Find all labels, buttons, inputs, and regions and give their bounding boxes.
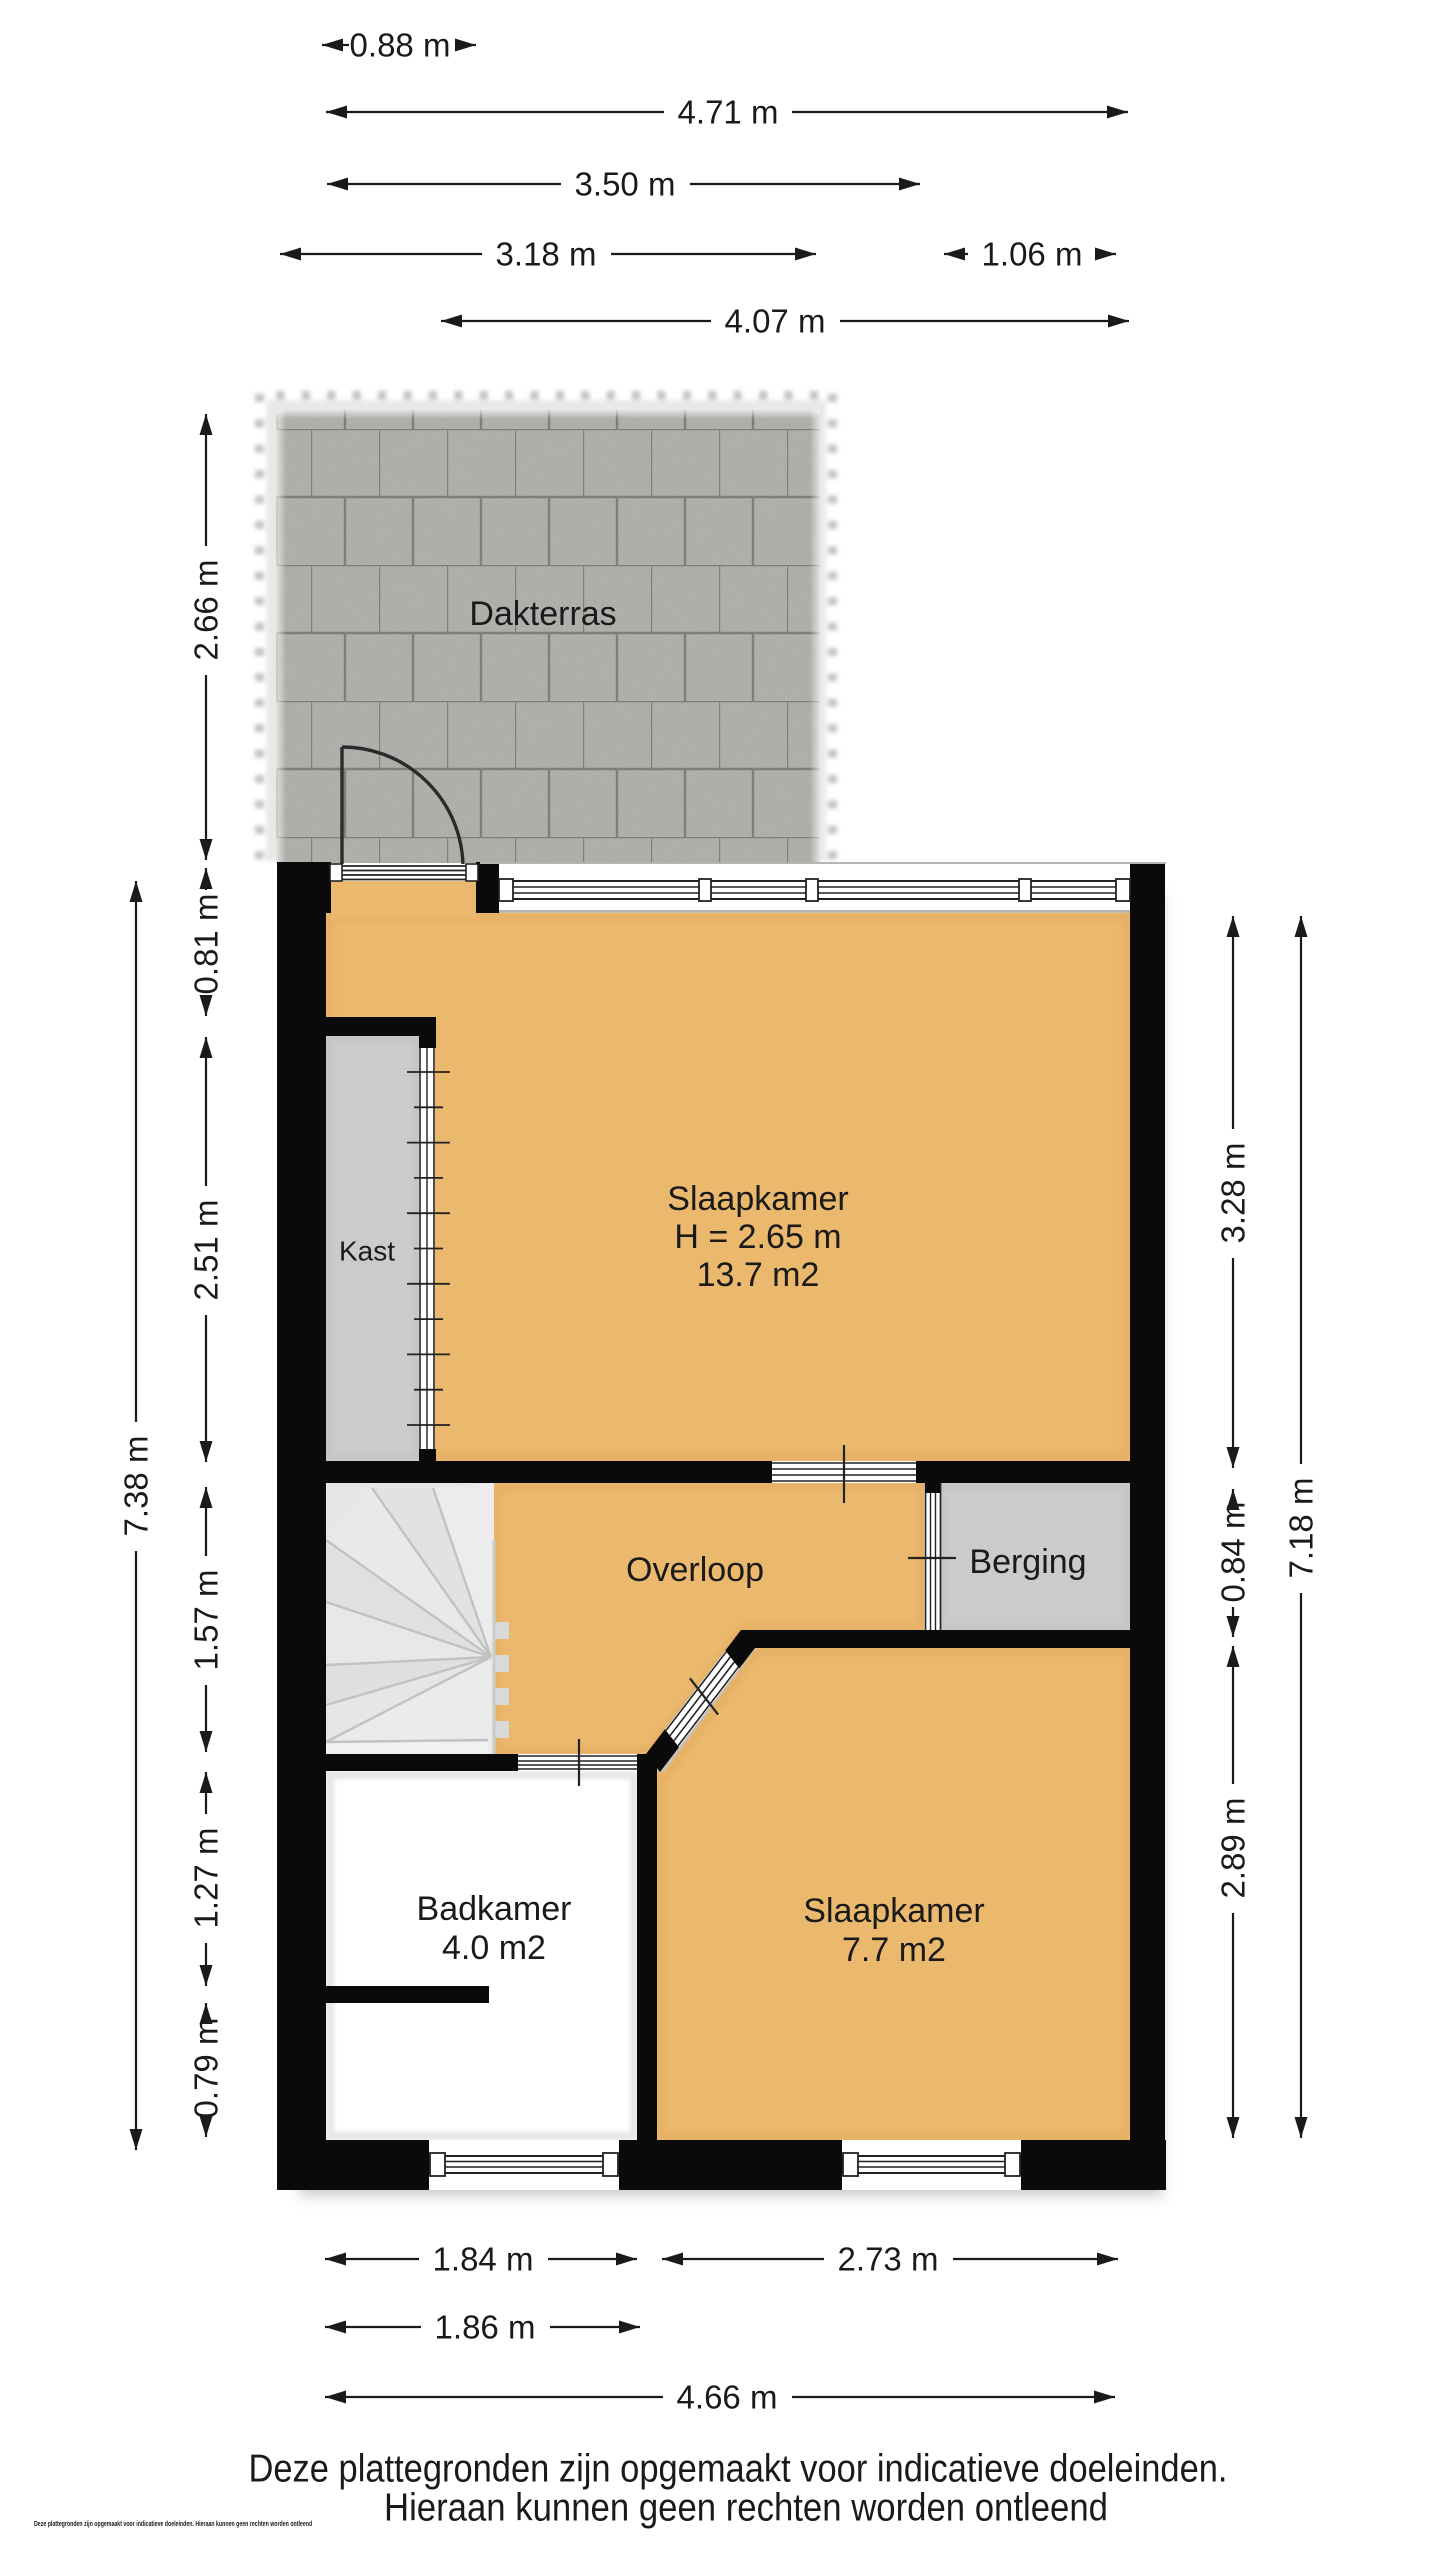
- svg-text:4.66 m: 4.66 m: [677, 2379, 778, 2416]
- svg-text:2.66 m: 2.66 m: [188, 560, 225, 661]
- svg-text:4.71 m: 4.71 m: [678, 94, 779, 131]
- svg-text:0.88 m: 0.88 m: [350, 27, 451, 64]
- svg-text:Slaapkamer: Slaapkamer: [667, 1180, 848, 1218]
- svg-text:0.79 m: 0.79 m: [188, 2018, 225, 2119]
- svg-text:1.06 m: 1.06 m: [982, 236, 1083, 273]
- svg-text:Slaapkamer: Slaapkamer: [803, 1892, 984, 1930]
- svg-text:Deze plattegronden zijn opgema: Deze plattegronden zijn opgemaakt voor i…: [249, 2448, 1228, 2491]
- svg-text:7.38 m: 7.38 m: [118, 1436, 155, 1537]
- svg-text:Hieraan kunnen geen rechten wo: Hieraan kunnen geen rechten worden ontle…: [384, 2487, 1108, 2530]
- svg-text:13.7 m2: 13.7 m2: [697, 1256, 820, 1294]
- svg-text:1.57 m: 1.57 m: [188, 1570, 225, 1671]
- svg-text:0.81 m: 0.81 m: [188, 894, 225, 995]
- svg-text:Berging: Berging: [969, 1543, 1086, 1581]
- svg-text:2.89 m: 2.89 m: [1215, 1798, 1252, 1899]
- svg-text:Kast: Kast: [339, 1236, 395, 1267]
- svg-text:Badkamer: Badkamer: [417, 1890, 572, 1928]
- svg-text:3.18 m: 3.18 m: [496, 236, 597, 273]
- svg-text:1.84 m: 1.84 m: [433, 2241, 534, 2278]
- svg-text:2.51 m: 2.51 m: [188, 1200, 225, 1301]
- svg-text:1.86 m: 1.86 m: [435, 2309, 536, 2346]
- svg-text:H = 2.65 m: H = 2.65 m: [674, 1218, 841, 1256]
- svg-text:2.73 m: 2.73 m: [838, 2241, 939, 2278]
- svg-text:3.50 m: 3.50 m: [575, 166, 676, 203]
- svg-text:Deze plattegronden zijn opgema: Deze plattegronden zijn opgemaakt voor i…: [34, 2520, 312, 2528]
- svg-text:7.7 m2: 7.7 m2: [842, 1931, 946, 1969]
- svg-text:Overloop: Overloop: [626, 1551, 764, 1589]
- svg-text:3.28 m: 3.28 m: [1215, 1143, 1252, 1244]
- svg-text:Dakterras: Dakterras: [469, 595, 616, 633]
- svg-text:0.84 m: 0.84 m: [1215, 1502, 1252, 1603]
- svg-text:4.0 m2: 4.0 m2: [442, 1929, 546, 1967]
- svg-text:1.27 m: 1.27 m: [188, 1828, 225, 1929]
- svg-text:4.07 m: 4.07 m: [725, 303, 826, 340]
- svg-text:7.18 m: 7.18 m: [1283, 1478, 1320, 1579]
